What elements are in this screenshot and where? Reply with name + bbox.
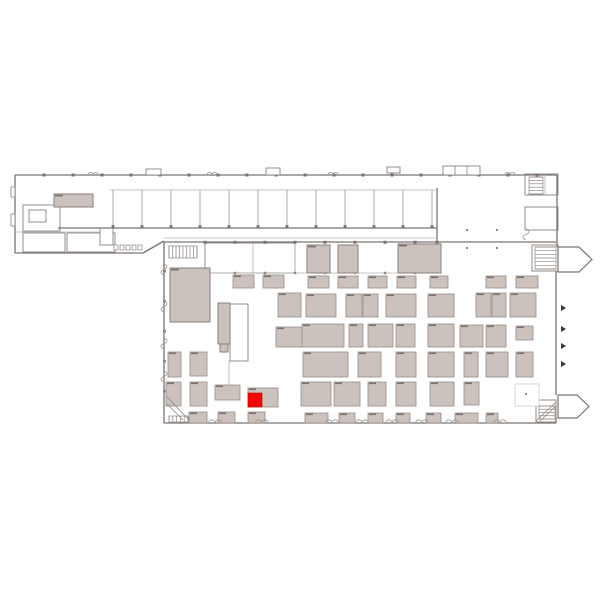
booth-label-mark (335, 383, 342, 385)
booth-label-mark (369, 414, 376, 416)
vestibule-box (266, 168, 280, 175)
column-mark (507, 174, 510, 177)
booth-label-mark (397, 353, 404, 355)
column-mark (362, 174, 365, 177)
column-mark (141, 225, 144, 228)
booth[interactable] (428, 324, 454, 347)
booth-label-mark (169, 353, 176, 355)
booth-label-mark (431, 277, 438, 279)
booth-label-mark (347, 295, 354, 297)
room (23, 233, 65, 252)
booth-label-mark (249, 413, 256, 415)
booth-label-mark (304, 353, 311, 355)
booth-label-mark (234, 276, 241, 278)
booth-label-mark (429, 295, 436, 297)
booth-label-mark (397, 325, 404, 327)
column-mark (315, 225, 318, 228)
booth[interactable] (486, 352, 508, 377)
booth[interactable] (301, 382, 331, 406)
gray-room (338, 245, 358, 273)
booth-label-mark (277, 328, 284, 330)
column-mark (264, 241, 267, 244)
column-mark (234, 241, 237, 244)
booth-label-mark (456, 414, 463, 416)
fixture (114, 245, 118, 250)
stairs-outline (169, 416, 188, 422)
booth-label-mark (517, 277, 524, 279)
booth[interactable] (510, 293, 536, 317)
booth[interactable] (486, 325, 506, 347)
column-mark (286, 225, 289, 228)
column-mark (130, 174, 133, 177)
booth[interactable] (166, 382, 181, 406)
booth[interactable] (460, 325, 483, 347)
column-mark (163, 390, 166, 392)
column-mark (373, 225, 376, 228)
gray-room (220, 344, 228, 352)
wall-pilaster (11, 187, 15, 197)
booth-label-mark (427, 414, 434, 416)
column-mark (324, 241, 327, 244)
booth[interactable] (358, 352, 381, 377)
booth-label-mark (167, 383, 174, 385)
column-mark (101, 174, 104, 177)
column-dot (525, 393, 527, 395)
booth[interactable] (492, 293, 506, 317)
column-mark (72, 174, 75, 177)
vestibule-box (387, 167, 400, 173)
booth[interactable] (363, 294, 378, 317)
booth[interactable] (516, 352, 533, 377)
booth[interactable] (334, 382, 360, 406)
booth-label-mark (307, 295, 314, 297)
column-mark (414, 241, 417, 244)
booth-label-mark (511, 294, 518, 296)
gray-room (170, 268, 210, 322)
floor-plan-page (0, 0, 600, 600)
booth[interactable] (346, 294, 362, 317)
gray-room (218, 303, 230, 344)
booth[interactable] (215, 385, 240, 400)
column-mark (246, 174, 249, 177)
room-label-mark (171, 269, 179, 271)
booth[interactable] (349, 324, 363, 347)
booth-label-mark (306, 414, 313, 416)
gray-room (398, 244, 441, 273)
door-marker-icon (561, 361, 566, 367)
booth-label-mark (264, 276, 271, 278)
booth[interactable] (428, 352, 454, 377)
entrance-arrow-icon[interactable] (558, 395, 589, 418)
wall-pilaster (11, 214, 15, 226)
column-dot (496, 247, 498, 249)
column-mark (257, 225, 260, 228)
column-mark (294, 272, 296, 274)
fixture (126, 245, 130, 250)
booth-label-mark (487, 353, 494, 355)
column-mark (204, 241, 207, 244)
column-mark (43, 174, 46, 177)
booth-label-mark (350, 325, 357, 327)
room (525, 207, 558, 230)
column-mark (163, 270, 166, 272)
column-mark (391, 174, 394, 177)
booth[interactable] (168, 352, 181, 377)
booth-label-mark (487, 277, 494, 279)
booth[interactable] (464, 352, 478, 377)
column-dot (466, 247, 468, 249)
column-mark (294, 241, 297, 244)
booth-label-mark (429, 325, 436, 327)
column-mark (436, 241, 439, 244)
column-mark (354, 241, 357, 244)
booth-label-mark (465, 383, 472, 385)
booth-label-mark (309, 277, 316, 279)
booth[interactable] (190, 382, 207, 406)
booth-label-mark (303, 325, 310, 327)
column-mark (402, 225, 405, 228)
booth[interactable] (430, 382, 454, 406)
column-mark (344, 225, 347, 228)
booth-label-mark (517, 353, 524, 355)
booth[interactable] (278, 293, 301, 317)
booth[interactable] (368, 382, 386, 406)
booth[interactable] (476, 293, 491, 317)
column-dot (496, 229, 498, 231)
booth-label-mark (302, 383, 309, 385)
column-mark (199, 225, 202, 228)
booth-label-mark (359, 353, 366, 355)
vestibule-box (443, 166, 480, 175)
room-label-mark (55, 195, 63, 197)
room (230, 304, 248, 361)
booth-label-mark (191, 383, 198, 385)
booth-label-mark (364, 295, 371, 297)
booth-label-mark (191, 353, 198, 355)
vestibule-box (146, 169, 161, 175)
room (100, 228, 113, 245)
booth-label-mark (398, 277, 405, 279)
door-swing-icon (523, 229, 529, 240)
wall (143, 241, 164, 253)
column-mark (228, 225, 231, 228)
booth-label-mark (431, 383, 438, 385)
room-label-mark (308, 246, 316, 248)
desk (29, 210, 46, 222)
column-dot (466, 229, 468, 231)
column-mark (384, 241, 387, 244)
booth-label-mark (340, 414, 347, 416)
entrance-arrow-icon[interactable] (558, 247, 592, 272)
floor-plan-canvas (0, 0, 600, 600)
column-mark (431, 225, 434, 228)
booth-label-mark (465, 353, 472, 355)
booth-label-mark (397, 414, 404, 416)
column-mark (188, 174, 191, 177)
door-marker-icon (561, 305, 566, 311)
booth[interactable] (190, 352, 207, 376)
booth-label-mark (487, 326, 494, 328)
booth-label-mark (219, 413, 226, 415)
column-mark (112, 225, 115, 228)
door-marker-icon (561, 343, 566, 349)
column-mark (304, 174, 307, 177)
booth-label-mark (429, 353, 436, 355)
fixture (120, 245, 124, 250)
column-mark (163, 360, 166, 362)
booth[interactable] (396, 382, 416, 406)
booth[interactable] (386, 294, 416, 317)
booth-label-mark (216, 386, 223, 388)
booth-label-mark (517, 327, 524, 329)
fixture (138, 245, 142, 250)
room (205, 243, 295, 273)
booth[interactable] (303, 352, 348, 377)
booth[interactable] (464, 382, 479, 405)
column-mark (170, 225, 173, 228)
booth[interactable] (396, 324, 415, 347)
booth-label-mark (279, 294, 286, 296)
booth-label-mark (190, 413, 197, 415)
highlighted-booth[interactable] (248, 393, 262, 407)
booth-label-mark (487, 414, 494, 416)
column-mark (536, 174, 539, 177)
column-mark (163, 330, 166, 332)
booth-label-mark (397, 383, 404, 385)
booth-label-mark (387, 295, 394, 297)
column-mark (234, 272, 236, 274)
fixture (132, 245, 136, 250)
booth-label-mark (369, 325, 376, 327)
booth-label-mark (369, 383, 376, 385)
booth[interactable] (368, 324, 393, 347)
booth-label-mark (369, 277, 376, 279)
booth-label-mark (493, 294, 500, 296)
booth[interactable] (396, 352, 416, 377)
booth-label-mark (461, 326, 468, 328)
door-marker-icon (561, 326, 566, 332)
room-label-mark (399, 245, 407, 247)
column-mark (264, 272, 266, 274)
booth[interactable] (306, 294, 336, 317)
column-mark (420, 174, 423, 177)
booth[interactable] (276, 327, 303, 347)
booth-label-mark (477, 294, 484, 296)
column-mark (384, 272, 386, 274)
gray-room (307, 245, 330, 273)
booth[interactable] (428, 294, 454, 317)
booth-label-mark (249, 389, 256, 391)
booth[interactable] (302, 324, 344, 347)
booth-label-mark (339, 277, 346, 279)
